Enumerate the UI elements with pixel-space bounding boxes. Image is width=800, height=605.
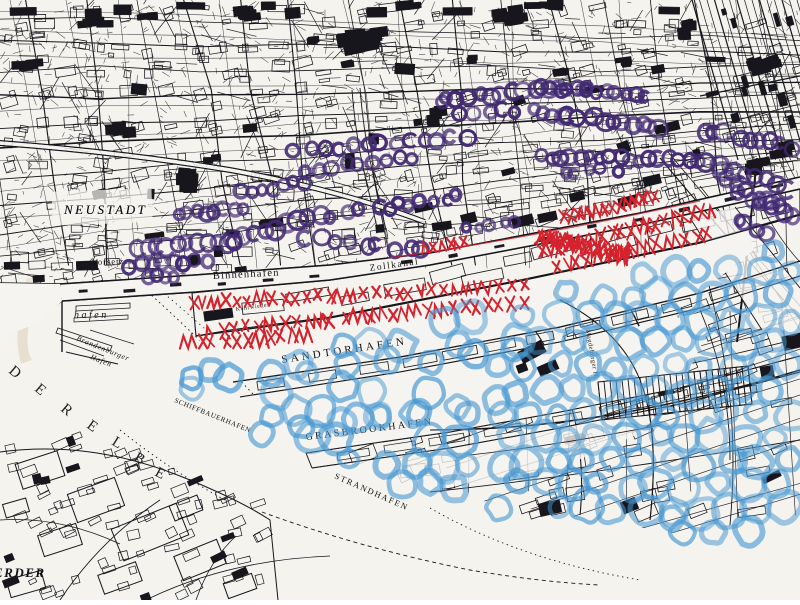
svg-text:hafen: hafen: [74, 310, 109, 321]
svg-text:ERDER: ERDER: [0, 565, 46, 580]
svg-text:NEUSTADT: NEUSTADT: [63, 202, 147, 217]
